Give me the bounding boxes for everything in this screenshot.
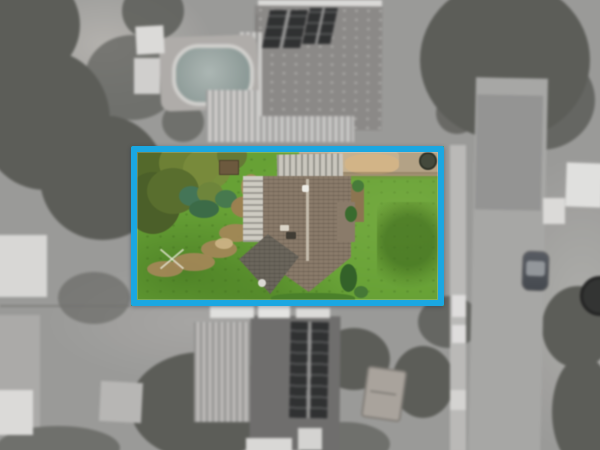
roof-ridge-cap bbox=[296, 308, 330, 318]
roof-ridge-cap bbox=[258, 304, 290, 318]
metal-roof-section bbox=[260, 116, 354, 142]
shed-roof bbox=[135, 25, 164, 54]
fence-line bbox=[0, 305, 130, 307]
solar-panel-array bbox=[262, 10, 308, 48]
neighbour-roof-west bbox=[0, 235, 47, 297]
footpath-slab bbox=[450, 390, 466, 410]
aerial-property-photo bbox=[0, 0, 600, 450]
roof-ridge-cap bbox=[210, 306, 254, 318]
property-boundary-outline bbox=[131, 146, 444, 306]
pool-house-roof bbox=[206, 90, 260, 142]
driveway-pad bbox=[543, 198, 565, 224]
tree-canopy bbox=[58, 272, 130, 324]
roof-section bbox=[298, 428, 322, 450]
roof-section bbox=[246, 438, 292, 450]
tree-canopy bbox=[436, 92, 478, 134]
trailer-roof-seam bbox=[370, 390, 396, 396]
footpath-slab bbox=[452, 295, 466, 317]
trailer-caravan bbox=[361, 365, 408, 422]
gable-roof bbox=[0, 390, 33, 435]
solar-panel-array bbox=[289, 322, 329, 419]
carport-roof bbox=[565, 162, 600, 207]
car-windshield bbox=[526, 261, 546, 277]
parked-car bbox=[522, 252, 548, 291]
shed-roof bbox=[134, 58, 160, 94]
shed-roof bbox=[99, 381, 143, 423]
metal-roof-section bbox=[194, 322, 250, 422]
footpath-slab bbox=[452, 325, 466, 343]
road-patch bbox=[475, 94, 543, 210]
